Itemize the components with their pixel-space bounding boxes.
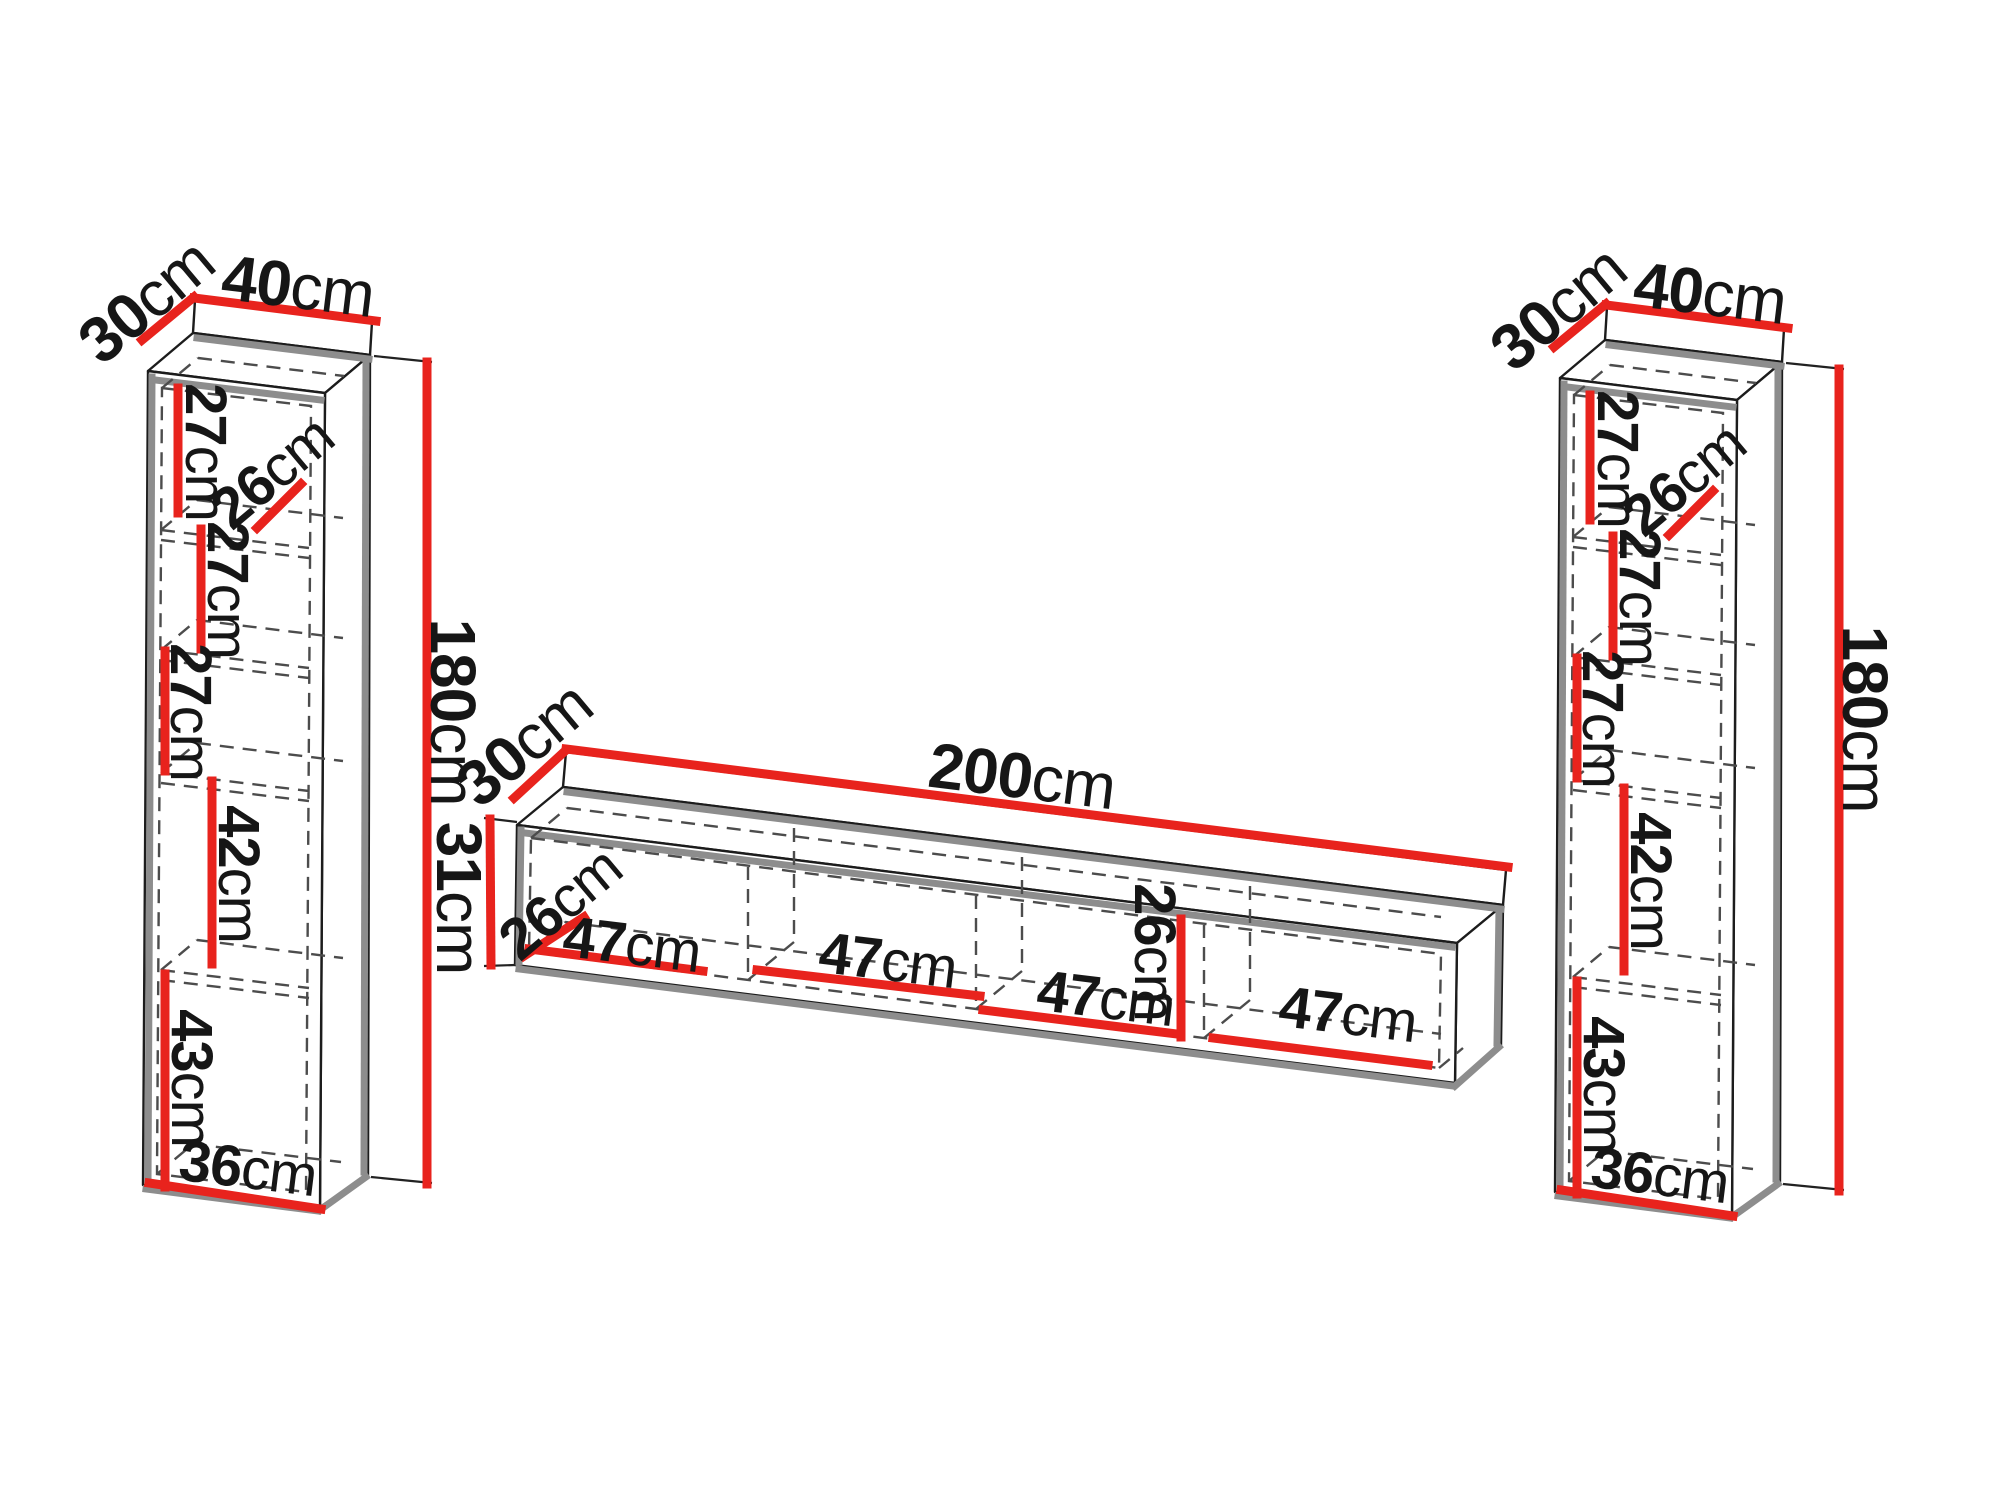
left-cabinet-inner_width-value: 36 xyxy=(176,1128,246,1200)
right-cabinet-height-value: 180 xyxy=(1829,625,1901,729)
right-cabinet-inner_width-value: 36 xyxy=(1588,1135,1658,1207)
right-cabinet-shelf1-value: 27 xyxy=(1585,390,1650,453)
left-cabinet-shadow-edge xyxy=(148,377,152,1182)
right-cabinet-shelf4-label: 42cm xyxy=(1618,812,1683,950)
left-cabinet-shelf2-value: 27 xyxy=(195,521,260,584)
right-cabinet-diagram: 30cm40cm180cm27cm26cm27cm27cm42cm43cm36c… xyxy=(1476,231,1901,1218)
left-cabinet-shelf5-value: 43 xyxy=(159,1009,224,1072)
left-cabinet-diagram: 30cm40cm180cm27cm26cm27cm27cm42cm43cm36c… xyxy=(64,224,489,1211)
tv-stand-height-value: 31 xyxy=(423,822,495,891)
right-cabinet-width-unit: cm xyxy=(1699,256,1790,338)
right-cabinet-shelf3-value: 27 xyxy=(1570,650,1635,713)
tv-stand-bay4-unit: cm xyxy=(1338,981,1421,1055)
tv-stand-bay2-unit: cm xyxy=(878,927,961,1001)
right-cabinet-shelf4-value: 42 xyxy=(1618,812,1683,875)
tv-stand-shadow-edge xyxy=(1497,909,1499,1043)
left-cabinet-shadow-edge xyxy=(364,360,366,1172)
left-cabinet-shelf5-label: 43cm xyxy=(159,1009,224,1147)
right-cabinet-height-unit: cm xyxy=(1829,729,1901,812)
tv-stand-diagram: 30cm200cm31cm26cm47cm47cm47cm26cm47cm xyxy=(423,667,1508,1086)
left-cabinet-shelf4-label: 42cm xyxy=(206,805,271,943)
tv-stand-inner_height-unit: cm xyxy=(1122,946,1187,1021)
left-cabinet-shelf3-unit: cm xyxy=(158,706,223,781)
left-cabinet-inner_width-unit: cm xyxy=(238,1135,321,1209)
tv-stand-inner_height-value: 26 xyxy=(1122,883,1187,946)
right-cabinet-height-label: 180cm xyxy=(1829,625,1901,812)
left-cabinet-shelf4-unit: cm xyxy=(206,868,271,943)
right-cabinet-shelf2-label: 27cm xyxy=(1607,528,1672,666)
tv-stand-inner_height-label: 26cm xyxy=(1122,883,1187,1021)
tv-stand-bay1-value: 47 xyxy=(560,904,630,976)
right-cabinet-shelf3-label: 27cm xyxy=(1570,650,1635,788)
diagram-canvas: 30cm40cm180cm27cm26cm27cm27cm42cm43cm36c… xyxy=(0,0,2000,1500)
left-cabinet-width-unit: cm xyxy=(287,249,378,331)
right-cabinet-shelf4-unit: cm xyxy=(1618,875,1683,950)
right-cabinet-width-value: 40 xyxy=(1630,248,1707,328)
left-cabinet-shelf1-value: 27 xyxy=(173,383,238,446)
furniture-dimension-diagram: 30cm40cm180cm27cm26cm27cm27cm42cm43cm36c… xyxy=(0,0,2000,1500)
right-cabinet-shadow-edge xyxy=(1776,367,1778,1179)
right-cabinet-shelf5-label: 43cm xyxy=(1571,1016,1636,1154)
tv-stand-height-unit: cm xyxy=(423,891,495,974)
tv-stand-bay1-unit: cm xyxy=(622,911,705,985)
tv-stand-width-unit: cm xyxy=(1028,742,1119,824)
tv-stand-bay2-value: 47 xyxy=(816,920,886,992)
tv-stand-height-label: 31cm xyxy=(423,822,495,975)
right-cabinet-shadow-edge xyxy=(1560,384,1564,1189)
left-cabinet-shelf4-value: 42 xyxy=(206,805,271,868)
left-cabinet-shelf2-label: 27cm xyxy=(195,521,260,659)
tv-stand-width-value: 200 xyxy=(925,729,1037,813)
left-cabinet-shelf3-label: 27cm xyxy=(158,643,223,781)
left-cabinet-shelf3-value: 27 xyxy=(158,643,223,706)
tv-stand-bay4-value: 47 xyxy=(1276,974,1346,1046)
tv-stand-bay3-value: 47 xyxy=(1034,958,1104,1030)
left-cabinet-width-value: 40 xyxy=(218,241,295,321)
left-cabinet-height-value: 180 xyxy=(417,618,489,722)
right-cabinet-shelf3-unit: cm xyxy=(1570,713,1635,788)
right-cabinet-inner_width-unit: cm xyxy=(1650,1142,1733,1216)
right-cabinet-shelf5-value: 43 xyxy=(1571,1016,1636,1079)
right-cabinet-shelf2-value: 27 xyxy=(1607,528,1672,591)
